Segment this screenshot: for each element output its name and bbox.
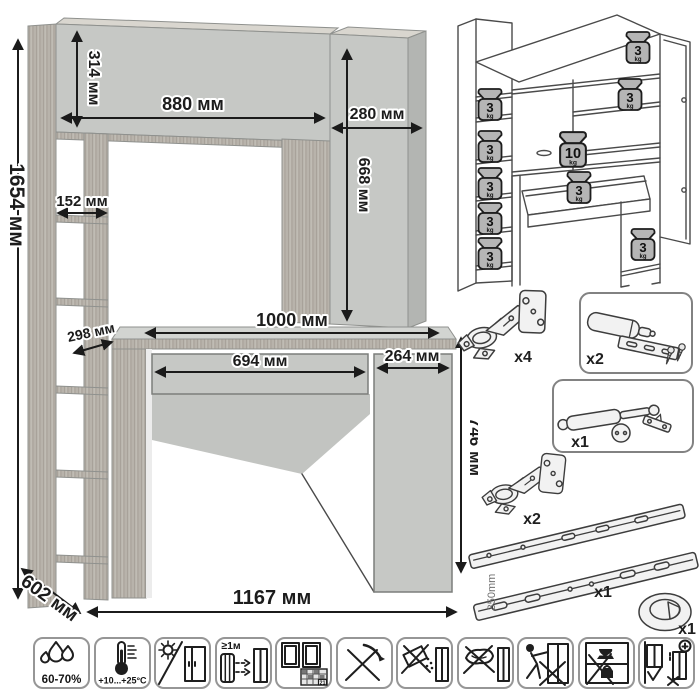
care-icon-no-abrasives [396,637,453,689]
svg-text:kg: kg [486,156,493,162]
dim-label-hutch-height: 314 мм [85,51,102,106]
cabinet-icon [254,649,267,682]
svg-text:kg: kg [486,228,493,234]
hinge-qty: x4 [514,349,532,366]
load-capacity-diagram: 3 kg 3 kg 3 kg 3 kg 3 kg 3 kg 3 kg 10 [458,15,690,291]
wall-cabinet-icon [645,642,662,683]
care-icon-heater-distance: ≥1м [215,637,272,689]
desk-leg-inner-face [146,349,152,598]
hutch-right-upright [282,139,330,324]
right-column-side [408,31,426,328]
radiator-icon [221,654,234,682]
dim-label-drawer-width: 694 мм [233,353,288,370]
svg-text:3: 3 [486,214,493,229]
slide-length-label: 350mm [486,574,498,611]
dimension-drawing: 1654 мм 314 мм 880 мм 280 мм 668 мм 152 … [0,0,478,636]
svg-text:3: 3 [626,90,633,105]
slash-line [159,642,182,684]
svg-text:3: 3 [486,249,493,264]
water-drops-icon [41,642,73,663]
cabinet-icon [185,647,205,681]
weight-badge: 3 kg [479,89,502,120]
svg-text:kg: kg [575,197,582,203]
calendar-icon: 21 [301,669,327,686]
svg-text:kg: kg [569,160,577,167]
dim-label-total-height: 1654 мм [5,163,28,247]
hardware-list: x4 x2 [450,285,698,636]
weight-badge: 3 kg [619,79,642,110]
damper-qty: x2 [586,351,604,368]
x-mark [346,650,379,680]
care-icon-anchor-to-wall [638,637,695,689]
dim-label-hutch-opening-width: 880 мм [162,94,224,114]
thermometer-icon [116,642,136,674]
cabinet-icon [436,648,448,681]
load-and-hardware-panel: 3 kg 3 kg 3 kg 3 kg 3 kg 3 kg 3 kg 10 [425,0,700,636]
check-mark [648,666,662,680]
slides-qty: x1 [594,584,612,601]
weight-badge: 3 kg [568,172,591,203]
left-side-panel [28,24,56,608]
care-icon-temperature: +10...+25°C [94,637,151,689]
weight-badge: 3 kg [479,238,502,269]
weight-badge: 3 kg [479,168,502,199]
weight-badge: 3 kg [632,229,655,260]
weight-badge: 3 kg [479,131,502,162]
fastener-magnifier-icon [680,641,691,652]
damper-box: x2 [580,293,692,373]
cabinet-icon [498,648,509,681]
svg-text:kg: kg [639,254,646,260]
care-icon-no-sharp-tools [336,637,393,689]
svg-text:3: 3 [639,240,646,255]
temperature-label: +10...+25°C [98,676,147,686]
svg-text:3: 3 [575,183,582,198]
dim-shelf-depth: 298 мм [66,319,116,353]
free-cabinet-icon [670,652,686,679]
cabinet-icon [548,644,568,683]
care-icon-humidity: 60-70% [33,637,90,689]
person-icon [526,644,548,678]
arrow-right-icon [236,660,250,675]
dim-label-shelf-width: 152 мм [56,193,107,210]
care-icon-no-dragging [517,637,574,689]
dim-label-desktop-width: 1000 мм [256,310,328,330]
svg-text:kg: kg [486,114,493,120]
care-icons-row: 60-70% +10...+25°C [33,637,697,691]
svg-text:kg: kg [634,57,641,63]
weight-badge-10kg: 10 kg [560,132,586,167]
care-icon-no-heavy-items [578,637,635,689]
hinge-illustration: x2 [477,450,573,528]
svg-text:kg: kg [486,193,493,199]
hinge2-qty: x2 [523,511,541,528]
care-icon-no-direct-sunlight [154,637,211,689]
svg-text:kg: kg [626,104,633,110]
care-icon-no-wet-cloth [457,637,514,689]
dim-label-side-column-height: 668 мм [355,158,372,213]
distance-label: ≥1м [221,640,241,652]
svg-text:3: 3 [486,142,493,157]
svg-text:3: 3 [634,43,641,58]
weight-badge: 3 kg [479,203,502,234]
x-mark [540,662,565,685]
dim-total-height: 1654 мм [5,40,28,598]
weight-badge: 3 kg [627,32,650,63]
furniture-dimension-sheet: 1654 мм 314 мм 880 мм 280 мм 668 мм 152 … [0,0,700,698]
desk-back-panel [152,394,370,474]
svg-text:kg: kg [486,263,493,269]
care-icon-ventilation: 21 [275,637,332,689]
pedestal-inner-edge [302,474,374,592]
svg-text:3: 3 [486,179,493,194]
grommet-qty: x1 [678,621,696,636]
gas-lift-qty: x1 [571,434,589,451]
dim-label-total-width: 1167 мм [233,587,312,609]
open-window-icon [282,643,320,667]
svg-text:3: 3 [486,100,493,115]
gas-lift-box: x1 [553,380,693,452]
hinge-illustration: x4 [450,285,557,366]
humidity-label: 60-70% [42,674,82,686]
desk-left-leg [112,349,146,598]
calendar-day-label: 21 [319,680,325,686]
dim-label-side-column-width: 280 мм [350,106,405,123]
